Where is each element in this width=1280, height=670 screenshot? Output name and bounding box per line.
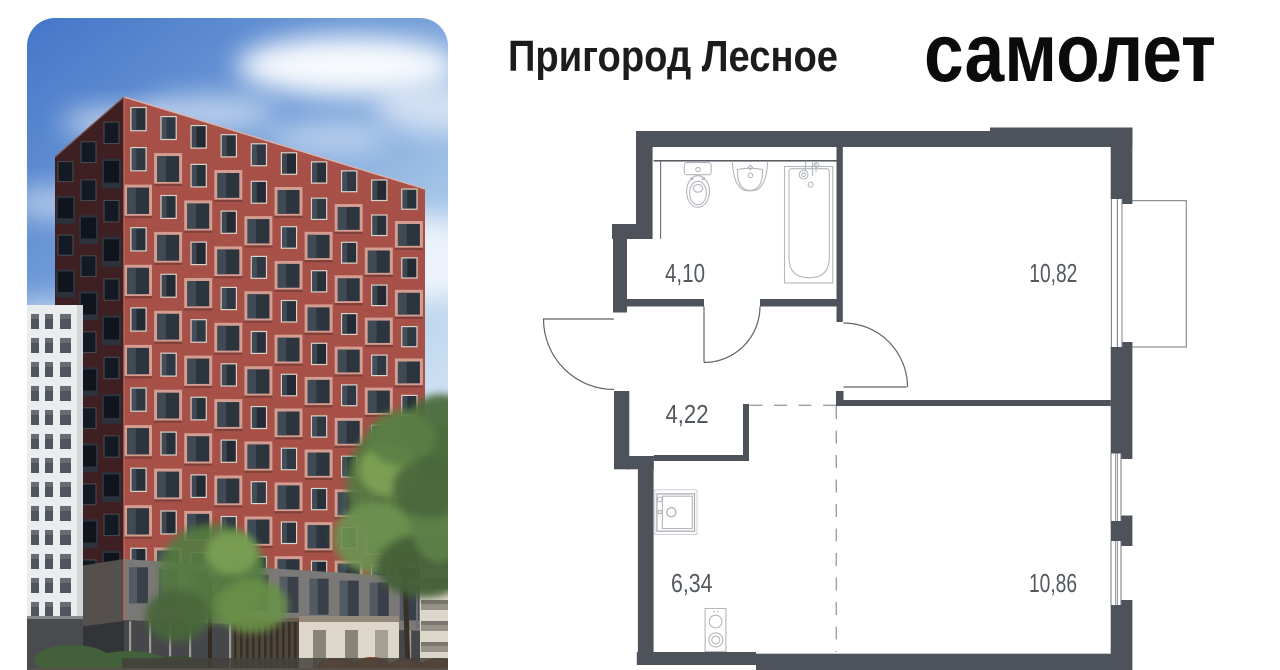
svg-text:4,10: 4,10 xyxy=(665,260,705,288)
svg-text:Пригород Лесное: Пригород Лесное xyxy=(508,33,838,81)
svg-text:4,22: 4,22 xyxy=(666,401,709,429)
svg-text:10,86: 10,86 xyxy=(1029,570,1077,598)
svg-text:6,34: 6,34 xyxy=(671,570,713,598)
svg-text:10,82: 10,82 xyxy=(1029,260,1077,288)
svg-text:самолет: самолет xyxy=(924,6,1216,99)
